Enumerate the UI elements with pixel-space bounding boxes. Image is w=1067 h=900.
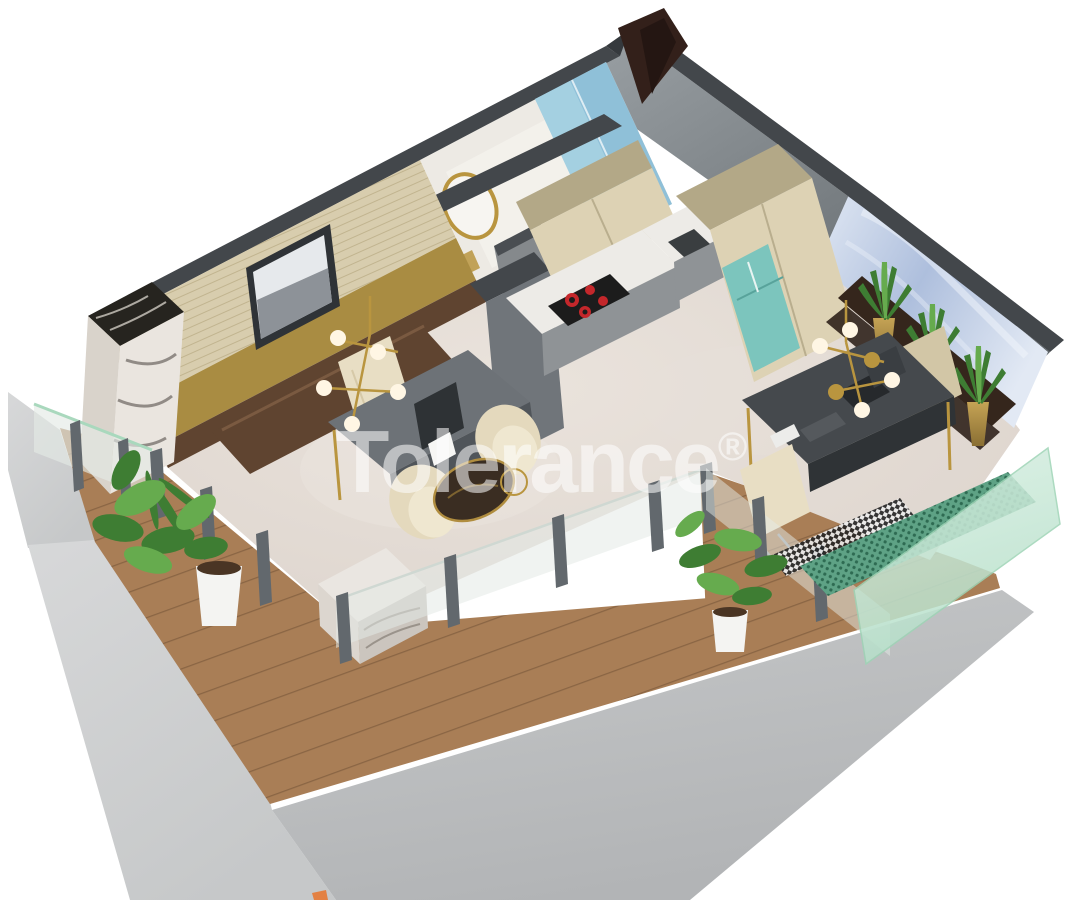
chandelier-globe [812, 338, 828, 354]
chandelier-globe [390, 384, 406, 400]
burner [598, 296, 608, 306]
pot-soil [713, 607, 747, 617]
watermark-brand: Tolerance [336, 412, 718, 511]
pot-soil [197, 561, 241, 575]
chandelier-globe [330, 330, 346, 346]
watermark: Tolerance® [336, 412, 747, 511]
chandelier-globe [842, 322, 858, 338]
chandelier-globe [316, 380, 332, 396]
registered-symbol: ® [718, 425, 747, 469]
chandelier-globe [828, 384, 844, 400]
floor-plan-render: concrete-slab terrace-deck bathroom [0, 0, 1067, 900]
burner [585, 285, 595, 295]
burner-center [569, 297, 575, 303]
chandelier-globe [370, 344, 386, 360]
office-desk-leg [948, 402, 950, 470]
chandelier-globe [864, 352, 880, 368]
chandelier-globe [884, 372, 900, 388]
scene-canvas: concrete-slab terrace-deck bathroom [0, 0, 1067, 900]
chandelier-globe [854, 402, 870, 418]
burner-center [583, 310, 588, 315]
